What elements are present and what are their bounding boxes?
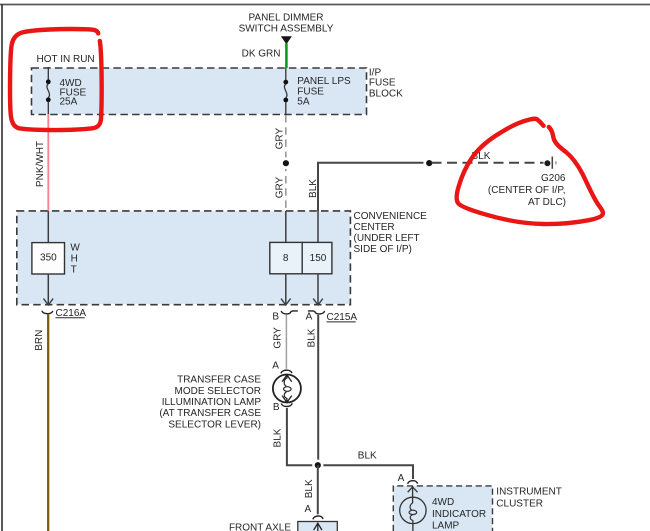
- svg-text:25A: 25A: [60, 97, 78, 108]
- svg-text:8: 8: [283, 253, 289, 264]
- svg-text:GRY: GRY: [275, 176, 286, 198]
- svg-text:BLOCK: BLOCK: [369, 89, 403, 100]
- svg-text:GRY: GRY: [275, 128, 286, 150]
- svg-text:BLK: BLK: [358, 450, 377, 461]
- svg-text:TRANSFER CASE: TRANSFER CASE: [177, 375, 261, 386]
- svg-text:PANEL DIMMER: PANEL DIMMER: [248, 13, 323, 24]
- svg-text:SELECTOR LEVER): SELECTOR LEVER): [168, 419, 261, 430]
- svg-text:ILLUMINATION LAMP: ILLUMINATION LAMP: [162, 397, 262, 408]
- svg-text:350: 350: [40, 253, 57, 264]
- svg-text:LAMP: LAMP: [432, 521, 460, 531]
- svg-text:(UNDER LEFT: (UNDER LEFT: [354, 233, 420, 244]
- svg-text:BLK: BLK: [308, 179, 319, 198]
- svg-text:FUSE: FUSE: [369, 78, 396, 89]
- svg-text:150: 150: [310, 253, 327, 264]
- svg-text:SIDE OF I/P): SIDE OF I/P): [354, 244, 412, 255]
- svg-text:AT DLC): AT DLC): [528, 197, 566, 208]
- svg-text:A: A: [272, 361, 279, 372]
- svg-text:BLK: BLK: [304, 479, 315, 498]
- svg-text:SWITCH ASSEMBLY: SWITCH ASSEMBLY: [239, 24, 334, 35]
- svg-text:INDICATOR: INDICATOR: [432, 509, 486, 520]
- svg-text:5A: 5A: [297, 97, 310, 108]
- svg-text:G206: G206: [541, 173, 566, 184]
- svg-text:4WD: 4WD: [432, 497, 454, 508]
- svg-text:C216A: C216A: [56, 308, 87, 319]
- svg-text:T: T: [71, 264, 77, 275]
- svg-text:GRY: GRY: [272, 327, 283, 349]
- svg-text:MODE SELECTOR: MODE SELECTOR: [175, 386, 262, 397]
- svg-text:BLK: BLK: [273, 428, 284, 447]
- svg-text:C215A: C215A: [327, 312, 358, 323]
- svg-text:(AT TRANSFER CASE: (AT TRANSFER CASE: [159, 408, 261, 419]
- svg-text:BRN: BRN: [34, 330, 45, 351]
- svg-text:B: B: [272, 311, 279, 322]
- svg-text:A: A: [305, 504, 312, 515]
- svg-text:CONVENIENCE: CONVENIENCE: [354, 211, 428, 222]
- svg-text:BLK: BLK: [306, 328, 317, 347]
- svg-text:HOT IN RUN: HOT IN RUN: [37, 54, 95, 65]
- svg-text:W: W: [70, 243, 80, 254]
- svg-text:DK GRN: DK GRN: [242, 48, 281, 59]
- svg-text:B: B: [273, 402, 280, 413]
- svg-text:(CENTER OF I/P,: (CENTER OF I/P,: [488, 185, 566, 196]
- svg-text:H: H: [71, 254, 78, 265]
- svg-text:INSTRUMENT: INSTRUMENT: [496, 487, 562, 498]
- svg-text:CENTER: CENTER: [354, 222, 395, 233]
- svg-text:A: A: [306, 311, 313, 322]
- svg-text:PNK/WHT: PNK/WHT: [35, 141, 46, 187]
- svg-text:A: A: [398, 473, 405, 484]
- svg-text:FRONT AXLE: FRONT AXLE: [229, 522, 291, 531]
- svg-text:CLUSTER: CLUSTER: [496, 498, 543, 509]
